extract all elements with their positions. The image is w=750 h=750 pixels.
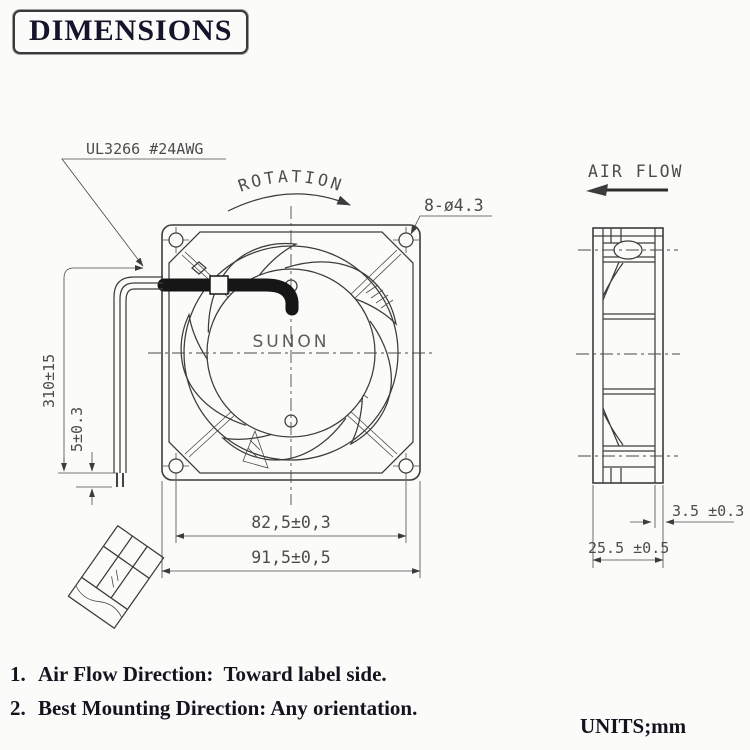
dim-lead-wire-length: 310±15 (40, 268, 143, 473)
fan-dimension-drawing: SUNON (0, 0, 750, 750)
note-row: 1. Air Flow Direction: Toward label side… (10, 662, 417, 687)
dim-strip-length: 5±0.3 (68, 407, 112, 505)
rotation-callout: ROTATION (218, 167, 364, 211)
dim-hole-pitch-label: 82,5±0,3 (251, 513, 330, 532)
units-label: UNITS;mm (580, 714, 686, 739)
rotation-arrow (228, 194, 350, 211)
air-flow-arrow (586, 184, 668, 196)
dim-flange-thickness-label: 3.5 ±0.3 (672, 502, 744, 520)
svg-text:ROTATION: ROTATION (236, 167, 347, 196)
mounting-holes-label: 8-ø4.3 (424, 196, 484, 215)
dim-hole-pitch: 82,5±0,3 (176, 481, 406, 543)
dim-frame-depth-label: 25.5 ±0.5 (588, 539, 669, 557)
air-flow-label: AIR FLOW (588, 162, 683, 181)
dim-frame-size-label: 91,5±0,5 (251, 548, 330, 567)
side-view: AIR FLOW 3.5 ±0.3 25.5 (576, 162, 744, 568)
connector (68, 526, 163, 629)
note-number: 1. (10, 662, 38, 687)
wire-stripped-tips (117, 473, 123, 487)
rotation-label: ROTATION (236, 167, 347, 196)
diamond-mark (192, 262, 206, 274)
lead-wires (114, 277, 163, 473)
dim-flange-thickness: 3.5 ±0.3 (630, 485, 744, 528)
note-number: 2. (10, 696, 38, 721)
side-centerlines (576, 250, 680, 456)
note-text: Air Flow Direction: Toward label side. (38, 662, 387, 687)
note-row: 2. Best Mounting Direction: Any orientat… (10, 696, 417, 721)
side-internal-lines (593, 228, 663, 483)
wire-clamp (210, 276, 228, 294)
note-text: Best Mounting Direction: Any orientation… (38, 696, 417, 721)
front-view: SUNON (40, 140, 492, 628)
dim-lead-wire-length-label: 310±15 (40, 354, 58, 408)
wire-callout: UL3266 #24AWG (62, 140, 226, 266)
notes-list: 1. Air Flow Direction: Toward label side… (10, 662, 417, 730)
dim-strip-length-label: 5±0.3 (68, 407, 86, 452)
dim-frame-depth: 25.5 ±0.5 (588, 485, 669, 568)
mounting-holes-callout: 8-ø4.3 (411, 196, 492, 234)
wire-label: UL3266 #24AWG (86, 140, 203, 158)
